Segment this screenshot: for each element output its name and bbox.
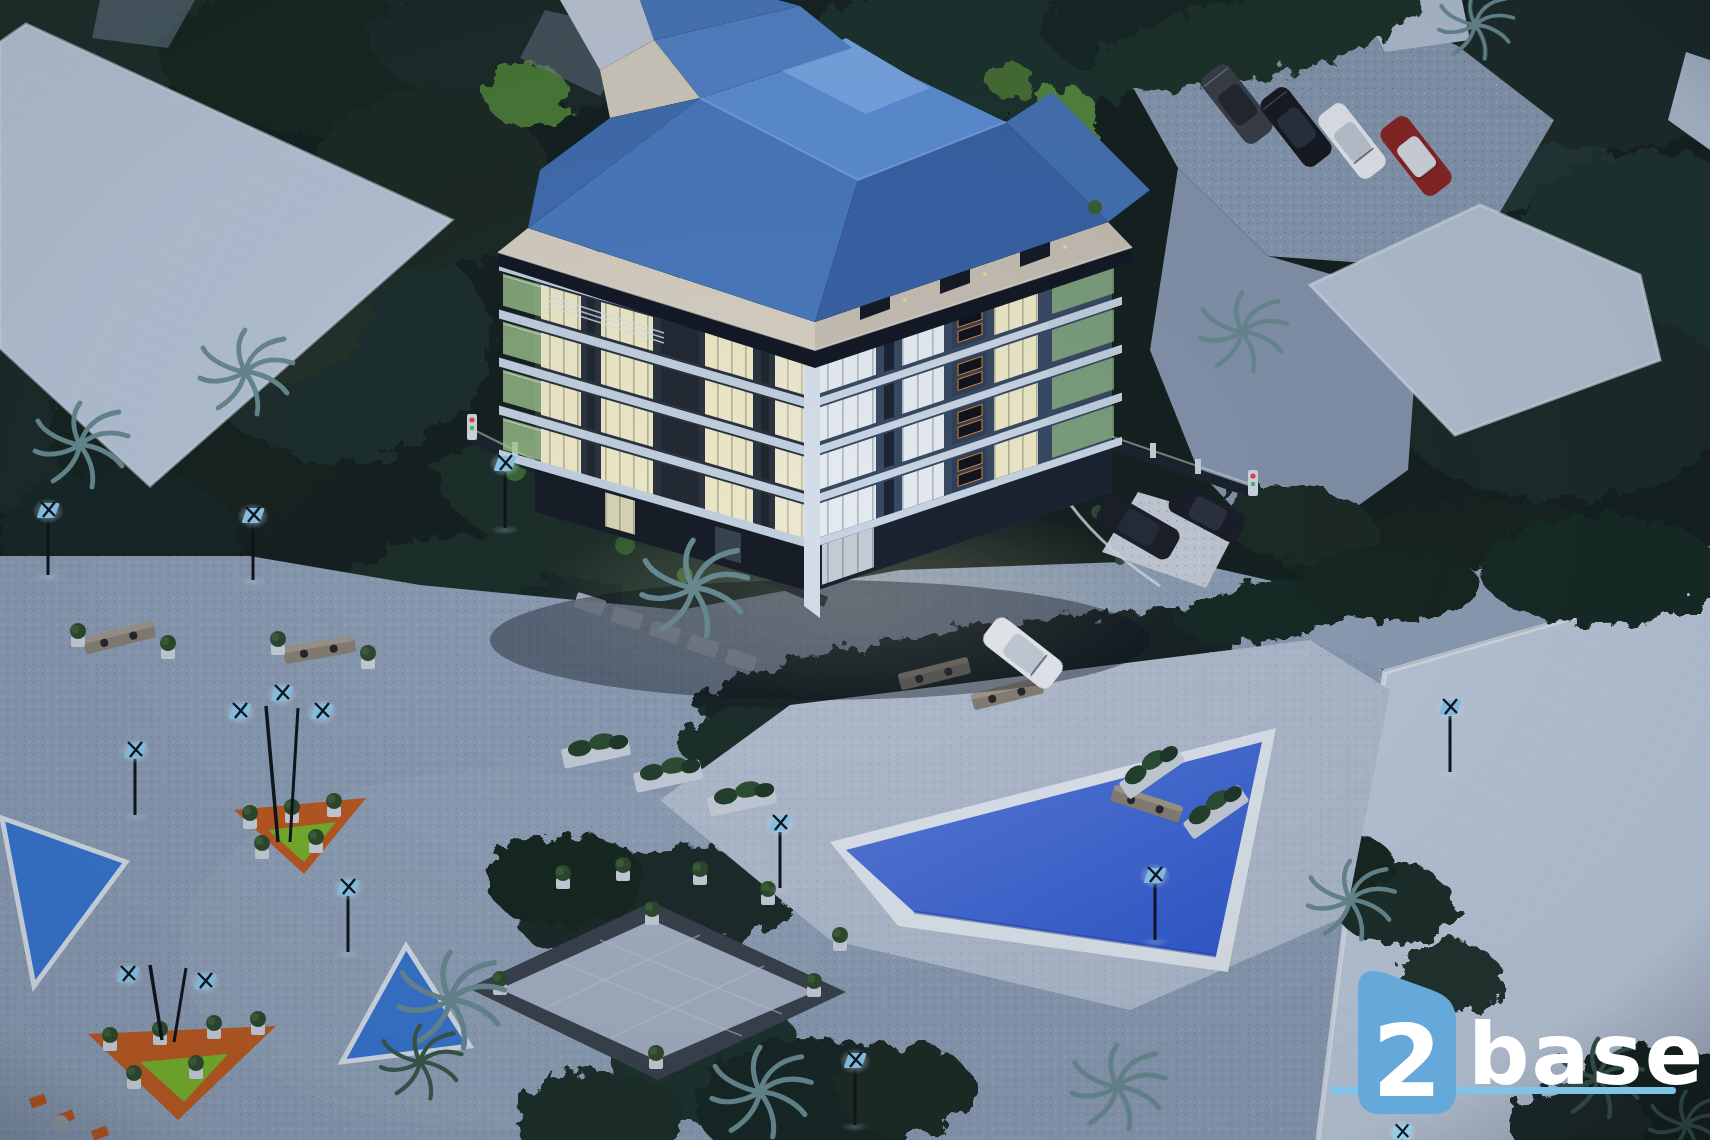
vignette (0, 0, 1710, 1140)
logo-word: base (1468, 1004, 1705, 1104)
render-image: 2 base (0, 0, 1710, 1140)
scene-svg: 2 base (0, 0, 1710, 1140)
logo-number: 2 (1372, 1003, 1442, 1120)
